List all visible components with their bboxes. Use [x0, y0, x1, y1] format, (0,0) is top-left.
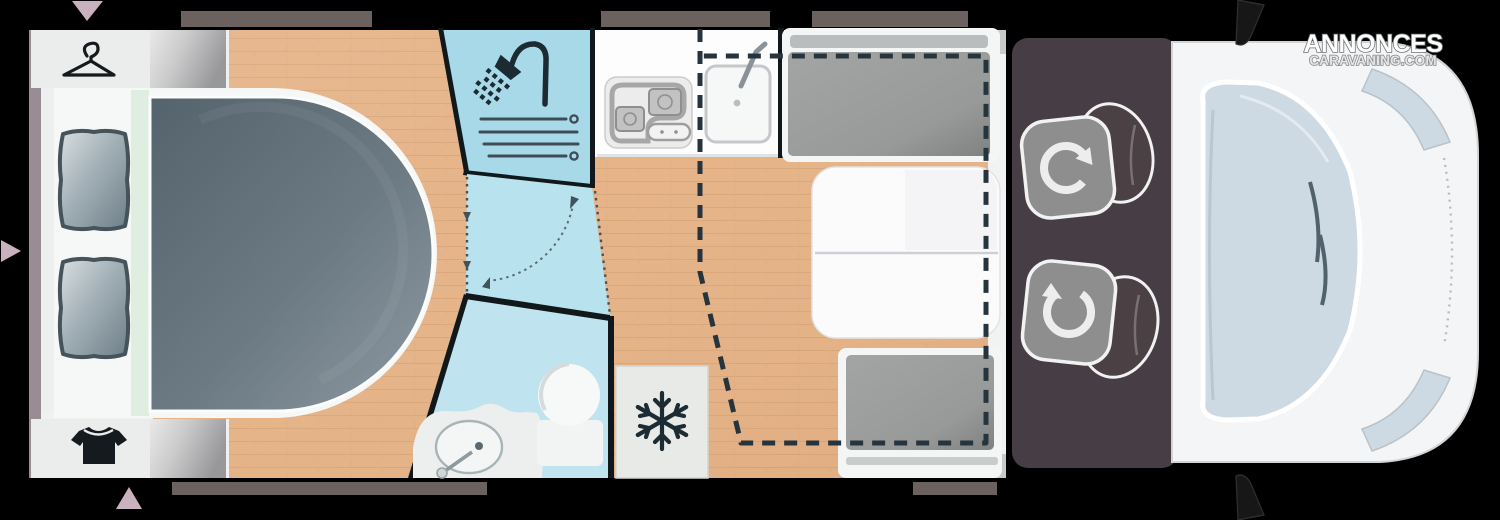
- svg-text:CARAVANING.COM: CARAVANING.COM: [1309, 53, 1437, 68]
